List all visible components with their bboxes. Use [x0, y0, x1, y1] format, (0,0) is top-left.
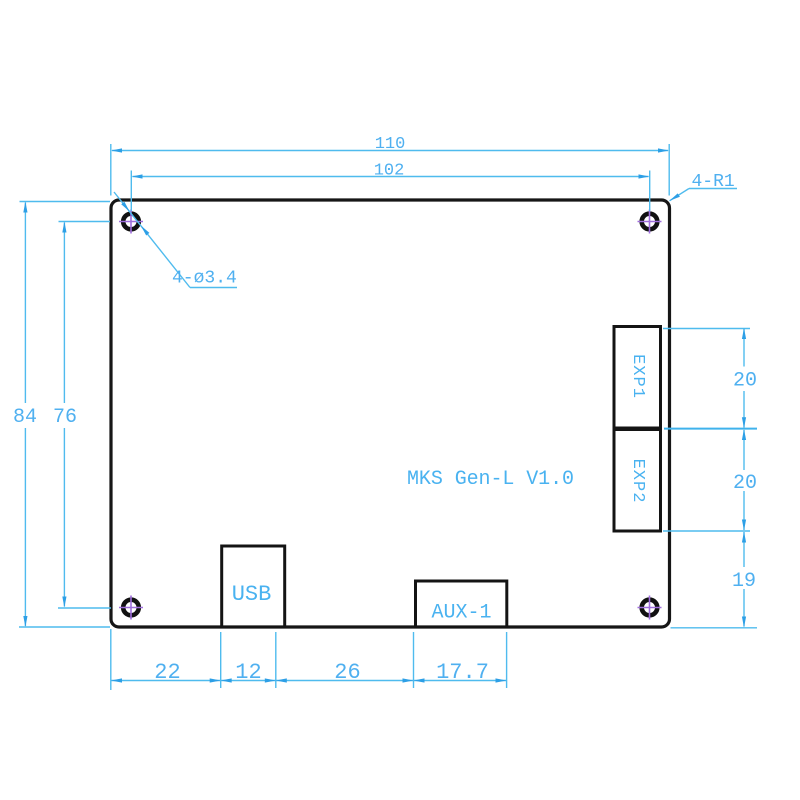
- svg-text:19: 19: [732, 570, 756, 593]
- svg-text:12: 12: [235, 660, 261, 685]
- svg-text:22: 22: [154, 660, 180, 685]
- svg-text:MKS Gen-L V1.0: MKS Gen-L V1.0: [407, 468, 574, 491]
- svg-text:EXP2: EXP2: [628, 459, 647, 504]
- svg-text:AUX-1: AUX-1: [431, 602, 491, 625]
- svg-text:26: 26: [334, 660, 360, 685]
- svg-text:20: 20: [733, 472, 757, 495]
- svg-text:76: 76: [53, 406, 77, 429]
- svg-text:4-R1: 4-R1: [692, 172, 735, 192]
- svg-text:4-ø3.4: 4-ø3.4: [172, 269, 237, 289]
- svg-text:20: 20: [733, 370, 757, 393]
- svg-text:USB: USB: [232, 582, 272, 607]
- svg-text:17.7: 17.7: [436, 660, 489, 685]
- svg-text:84: 84: [13, 406, 37, 429]
- svg-text:EXP1: EXP1: [628, 354, 647, 399]
- svg-text:110: 110: [375, 135, 406, 154]
- svg-text:102: 102: [374, 162, 405, 181]
